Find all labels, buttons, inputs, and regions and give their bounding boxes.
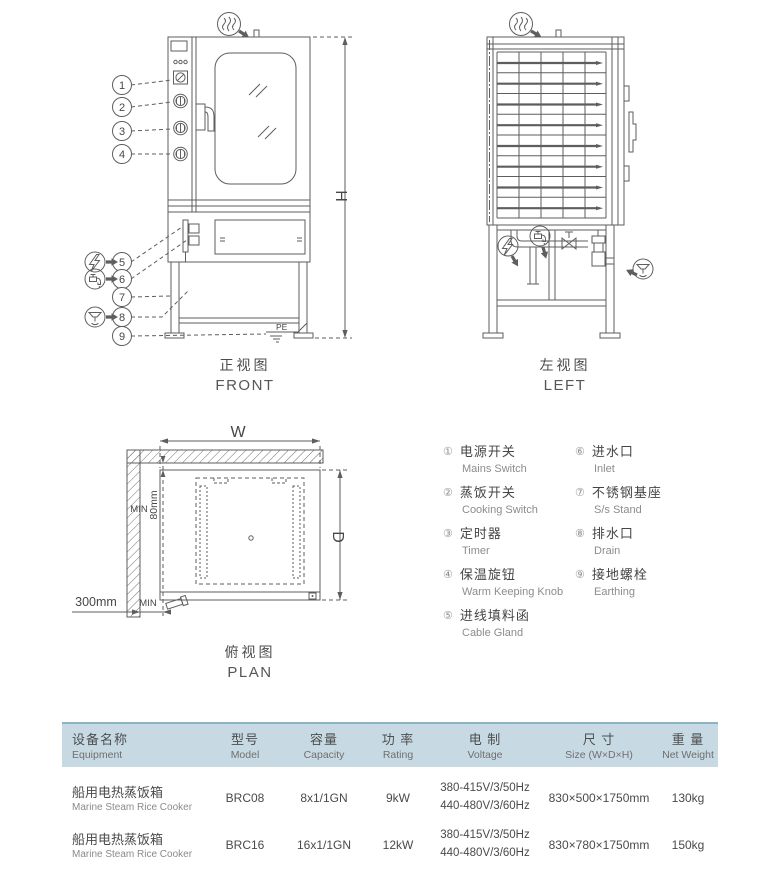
arrow-icon xyxy=(539,246,549,260)
legend-number: ② xyxy=(443,487,453,499)
header-model: 型号 Model xyxy=(208,723,282,767)
cell-voltage: 380-415V/3/50Hz 440-480V/3/60Hz xyxy=(430,821,540,868)
legend-zh: 电源开关 xyxy=(460,444,516,459)
dim-300mm-label: 300mm xyxy=(75,595,117,609)
table-row-brc16: 船用电热蒸饭箱 Marine Steam Rice Cooker BRC16 1… xyxy=(62,821,718,868)
door-outline xyxy=(196,478,304,584)
cell-voltage: 380-415V/3/50Hz 440-480V/3/60Hz xyxy=(430,767,540,821)
legend-item-cooking-switch: ②蒸饭开关 Cooking Switch xyxy=(443,482,575,516)
door-handle-side xyxy=(629,112,636,152)
legend-en: Cable Gland xyxy=(462,627,575,639)
equipment-en: Marine Steam Rice Cooker xyxy=(72,802,207,813)
legend-zh: 进水口 xyxy=(592,444,634,459)
spec-table: 设备名称 Equipment 型号 Model 容量 Capacity 功 率 … xyxy=(62,722,718,868)
control-panel xyxy=(171,41,188,161)
legend-zh: 接地螺栓 xyxy=(592,567,648,582)
cell-model: BRC08 xyxy=(208,767,282,821)
dim-w-label: W xyxy=(230,424,246,441)
cell-model: BRC16 xyxy=(208,821,282,868)
legend-number: ⑨ xyxy=(575,569,585,581)
voltage-line-2: 440-480V/3/60Hz xyxy=(431,798,539,816)
hinge xyxy=(624,86,629,101)
steam-icon xyxy=(218,13,241,36)
plan-view-title: 俯视图 PLAN xyxy=(185,642,315,681)
legend-number: ⑥ xyxy=(575,446,585,458)
equipment-en: Marine Steam Rice Cooker xyxy=(72,849,207,860)
header-capacity: 容量 Capacity xyxy=(282,723,366,767)
left-view-drawing xyxy=(483,13,636,339)
legend-item-inlet: ⑥进水口 Inlet xyxy=(575,441,707,475)
tray-rail xyxy=(200,486,207,578)
legend-item-ss-stand: ⑦不锈钢基座 S/s Stand xyxy=(575,482,707,516)
header-rating: 功 率 Rating xyxy=(366,723,430,767)
callout-2: 2 xyxy=(119,102,125,114)
cell-equipment: 船用电热蒸饭箱 Marine Steam Rice Cooker xyxy=(62,821,208,868)
min-top-label: MIN xyxy=(130,504,148,515)
table-row-brc08: 船用电热蒸饭箱 Marine Steam Rice Cooker BRC08 8… xyxy=(62,767,718,821)
legend-en: S/s Stand xyxy=(594,504,707,516)
header-en: Rating xyxy=(368,749,428,761)
timer-knob xyxy=(174,121,188,135)
header-en: Equipment xyxy=(72,749,206,761)
header-zh: 容量 xyxy=(284,729,364,748)
wall-left xyxy=(127,450,140,617)
front-height-dimension: H xyxy=(313,37,352,338)
legend-zh: 定时器 xyxy=(460,526,502,541)
front-callouts xyxy=(131,80,266,336)
min-bottom-label: MIN xyxy=(139,598,157,609)
header-en: Size (W×D×H) xyxy=(542,749,656,761)
drain-icon xyxy=(85,307,105,327)
legend-zh: 蒸饭开关 xyxy=(460,485,516,500)
legend-en: Earthing xyxy=(594,586,707,598)
header-en: Net Weight xyxy=(660,749,716,761)
dim-h-label: H xyxy=(332,190,349,202)
front-view-title-zh: 正视图 xyxy=(180,355,310,375)
callout-5: 5 xyxy=(119,257,125,269)
cell-size: 830×500×1750mm xyxy=(540,767,658,821)
cable-gland xyxy=(183,220,188,252)
header-equipment: 设备名称 Equipment xyxy=(62,723,208,767)
wall-top xyxy=(127,450,323,463)
callout-3: 3 xyxy=(119,126,125,138)
front-callout-circles: 1 2 3 4 5 6 7 8 9 xyxy=(113,76,132,346)
cell-weight: 150kg xyxy=(658,821,718,868)
front-view-title-en: FRONT xyxy=(180,377,310,394)
water-tap-icon xyxy=(530,226,550,246)
legend-number: ⑧ xyxy=(575,528,585,540)
cooking-switch-knob xyxy=(174,94,188,108)
plan-handle xyxy=(165,596,188,611)
front-view-drawing: PE xyxy=(165,13,313,343)
legend-item-mains-switch: ①电源开关 Mains Switch xyxy=(443,441,575,475)
hinge xyxy=(624,166,629,181)
electricity-icon xyxy=(498,236,518,256)
chimney xyxy=(556,30,561,37)
door-handle xyxy=(196,104,205,130)
legend-en: Mains Switch xyxy=(462,463,575,475)
stand-leg xyxy=(171,262,179,333)
pe-label: PE xyxy=(276,322,288,332)
header-en: Model xyxy=(210,749,280,761)
plan-view-title-zh: 俯视图 xyxy=(185,642,315,662)
header-zh: 功 率 xyxy=(368,729,428,748)
chimney xyxy=(254,30,259,37)
callout-8: 8 xyxy=(119,312,125,324)
header-zh: 电 制 xyxy=(432,729,538,748)
legend-number: ④ xyxy=(443,569,453,581)
datasheet-page: PE H xyxy=(0,0,775,876)
steam-icon xyxy=(510,13,533,36)
equipment-zh: 船用电热蒸饭箱 xyxy=(72,829,207,848)
header-zh: 型号 xyxy=(210,729,280,748)
cell-size: 830×780×1750mm xyxy=(540,821,658,868)
left-view-title-en: LEFT xyxy=(500,377,630,394)
cell-capacity: 16x1/1GN xyxy=(282,821,366,868)
cell-capacity: 8x1/1GN xyxy=(282,767,366,821)
header-size: 尺 寸 Size (W×D×H) xyxy=(540,723,658,767)
tray-rail xyxy=(293,486,300,578)
stand-leg xyxy=(299,262,307,333)
callout-7: 7 xyxy=(119,292,125,304)
legend-en: Timer xyxy=(462,545,575,557)
header-zh: 设备名称 xyxy=(72,729,206,748)
legend-item-warm-keeping-knob: ④保温旋钮 Warm Keeping Knob xyxy=(443,564,575,598)
legend-en: Warm Keeping Knob xyxy=(462,586,575,598)
shelf-rack xyxy=(497,52,606,218)
dim-d-label: D xyxy=(329,531,346,543)
cell-equipment: 船用电热蒸饭箱 Marine Steam Rice Cooker xyxy=(62,767,208,821)
legend-zh: 不锈钢基座 xyxy=(592,485,662,500)
legend-number: ③ xyxy=(443,528,453,540)
legend-en: Cooking Switch xyxy=(462,504,575,516)
legend-item-cable-gland: ⑤进线填料函 Cable Gland xyxy=(443,605,575,639)
equipment-zh: 船用电热蒸饭箱 xyxy=(72,782,207,801)
legend-zh: 保温旋钮 xyxy=(460,567,516,582)
legend-item-drain: ⑧排水口 Drain xyxy=(575,523,707,557)
header-zh: 尺 寸 xyxy=(542,729,656,748)
spec-table-header-row: 设备名称 Equipment 型号 Model 容量 Capacity 功 率 … xyxy=(62,723,718,767)
display xyxy=(171,41,187,51)
callout-9: 9 xyxy=(119,331,125,343)
header-zh: 重 量 xyxy=(660,729,716,748)
legend-zh: 进线填料函 xyxy=(460,608,530,623)
voltage-line-2: 440-480V/3/60Hz xyxy=(431,845,539,863)
left-view-title-zh: 左视图 xyxy=(500,355,630,375)
callout-6: 6 xyxy=(119,274,125,286)
plan-view-title-en: PLAN xyxy=(185,664,315,681)
warm-keeping-knob xyxy=(174,147,188,161)
stand-and-pipes xyxy=(483,225,620,338)
inlet-valve xyxy=(189,224,199,233)
door xyxy=(196,53,296,184)
legend-number: ⑤ xyxy=(443,610,453,622)
cell-rating: 12kW xyxy=(366,821,430,868)
legend: ①电源开关 Mains Switch ②蒸饭开关 Cooking Switch … xyxy=(443,441,723,601)
legend-item-timer: ③定时器 Timer xyxy=(443,523,575,557)
header-en: Voltage xyxy=(432,749,538,761)
legend-item-earthing: ⑨接地螺栓 Earthing xyxy=(575,564,707,598)
left-view-title: 左视图 LEFT xyxy=(500,355,630,394)
legend-zh: 排水口 xyxy=(592,526,634,541)
header-voltage: 电 制 Voltage xyxy=(430,723,540,767)
drain-valve xyxy=(594,230,614,264)
front-view-title: 正视图 FRONT xyxy=(180,355,310,394)
legend-en: Drain xyxy=(594,545,707,557)
dim-80mm-label: 80mm xyxy=(148,490,160,519)
legend-number: ⑦ xyxy=(575,487,585,499)
cell-rating: 9kW xyxy=(366,767,430,821)
cell-weight: 130kg xyxy=(658,767,718,821)
legend-en: Inlet xyxy=(594,463,707,475)
voltage-line-1: 380-415V/3/50Hz xyxy=(431,827,539,845)
header-net-weight: 重 量 Net Weight xyxy=(658,723,718,767)
callout-1: 1 xyxy=(119,80,125,92)
header-en: Capacity xyxy=(284,749,364,761)
arrow-icon xyxy=(509,254,522,268)
voltage-line-1: 380-415V/3/50Hz xyxy=(431,780,539,798)
legend-number: ① xyxy=(443,446,453,458)
plan-view-drawing: W D xyxy=(72,424,347,617)
callout-4: 4 xyxy=(119,149,125,161)
